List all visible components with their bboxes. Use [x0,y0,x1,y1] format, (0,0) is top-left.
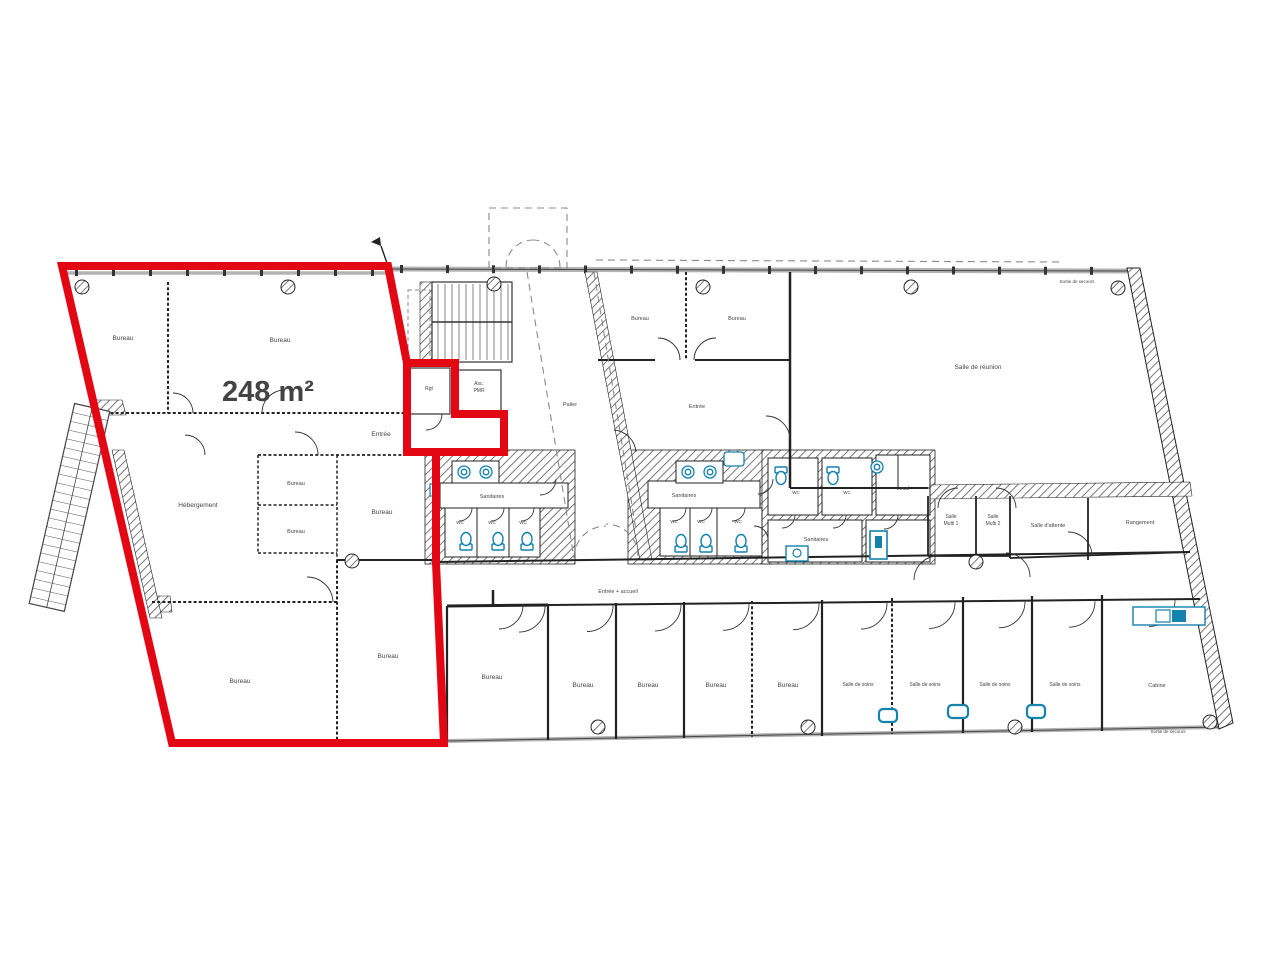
room-sanitaires-mid: Sanitaires [672,493,697,499]
sink-icon [704,466,716,478]
exit-top: Sortie de secours [1059,279,1095,284]
room-bureau-b4: Bureau [706,682,727,689]
sink-icon [480,466,492,478]
door-arc [587,606,613,632]
room-rangement: Rangement [1126,520,1155,526]
room-salle-reunion: Salle de réunion [955,364,1002,371]
exit-bottom: Sortie de secours [1150,729,1186,734]
shower-tray-icon [875,536,882,548]
room-wc-l1: WC [456,520,464,525]
room-soins-1: Salle de soins [842,682,874,688]
room-cabine: Cabine [1148,683,1165,689]
corridor-label: Entrée + accueil [598,589,638,595]
room-bureau-small-1: Bureau [287,481,305,487]
room-bureau-b3: Bureau [638,682,659,689]
room-bureau-mid: Bureau [372,509,393,516]
room-wc-r2: WC [843,490,851,495]
room-bureau-bottom-left: Bureau [230,678,251,685]
door-arc [655,605,681,631]
room-entree-zone: Entrée [371,431,391,438]
room-bureau-bottom-mid: Bureau [378,653,399,660]
room-wc-m2: WC [697,519,705,524]
room-salle-multi-1a: Salle [945,514,956,520]
door-arc [861,603,887,629]
room-sanitaires-left: Sanitaires [480,494,505,500]
room-asc-line1: Asc. [474,381,484,387]
room-bureau-b1: Bureau [482,674,503,681]
room-wc-m3: WC [734,519,742,524]
room-bureau-top-main: Bureau [270,337,291,344]
room-salle-multi-1b: Multi 1 [944,521,959,527]
room-bureau-b2: Bureau [573,682,594,689]
room-wc-l3: WC [519,520,527,525]
room-bureau-b5: Bureau [778,682,799,689]
room-soins-2: Salle de soins [909,682,941,688]
toilet-icon [460,533,472,551]
sink-icon [458,466,470,478]
room-rgt: Rgt [425,386,433,392]
toilet-icon [775,467,787,485]
area-label: 248 m² [222,376,314,408]
room-bureau-small-2: Bureau [287,529,305,535]
door-arc [999,602,1025,628]
washer-door-icon [793,549,801,557]
counter-hob-icon [1172,610,1186,622]
toilet-icon [521,533,533,551]
room-soins-4: Salle de soins [1049,682,1081,688]
room-local: Local [897,486,909,492]
door-arc [793,604,819,630]
room-wc-l2: WC [488,520,496,525]
toilet-icon [700,535,712,553]
room-bureau-top-left: Bureau [113,335,134,342]
room-salle-multi-2b: Multi 2 [986,521,1001,527]
toilet-icon [492,533,504,551]
room-salle-attente: Salle d'attente [1031,523,1066,529]
door-arc [723,604,749,630]
room-wc-m1: WC [670,519,678,524]
room-asc-line2: PMR [473,388,485,394]
room-bureau-t1: Bureau [631,316,649,322]
care-basin-icon [1027,705,1045,718]
room-bureau-t2: Bureau [728,316,746,322]
urinal-icon [724,452,744,466]
care-basin-icon [948,705,968,718]
door-arc [1069,601,1095,627]
room-hebergement: Hébergement [178,502,218,509]
sink-icon [682,466,694,478]
floor-plan: 248 m²BureauBureauEntréeRgtAsc.PMRHéberg… [0,0,1280,960]
door-arc [929,602,955,628]
room-wc-r1: WC [792,490,800,495]
toilet-icon [735,535,747,553]
sink-icon [871,461,883,473]
room-palier: Palier [563,402,577,408]
toilet-icon [675,535,687,553]
room-sanitaires-right: Sanitaires [804,537,829,543]
care-basin-icon [879,709,897,722]
room-entree-mid: Entrée [689,404,705,410]
room-salle-multi-2a: Salle [987,514,998,520]
room-soins-3: Salle de soins [979,682,1011,688]
toilet-icon [827,467,839,485]
